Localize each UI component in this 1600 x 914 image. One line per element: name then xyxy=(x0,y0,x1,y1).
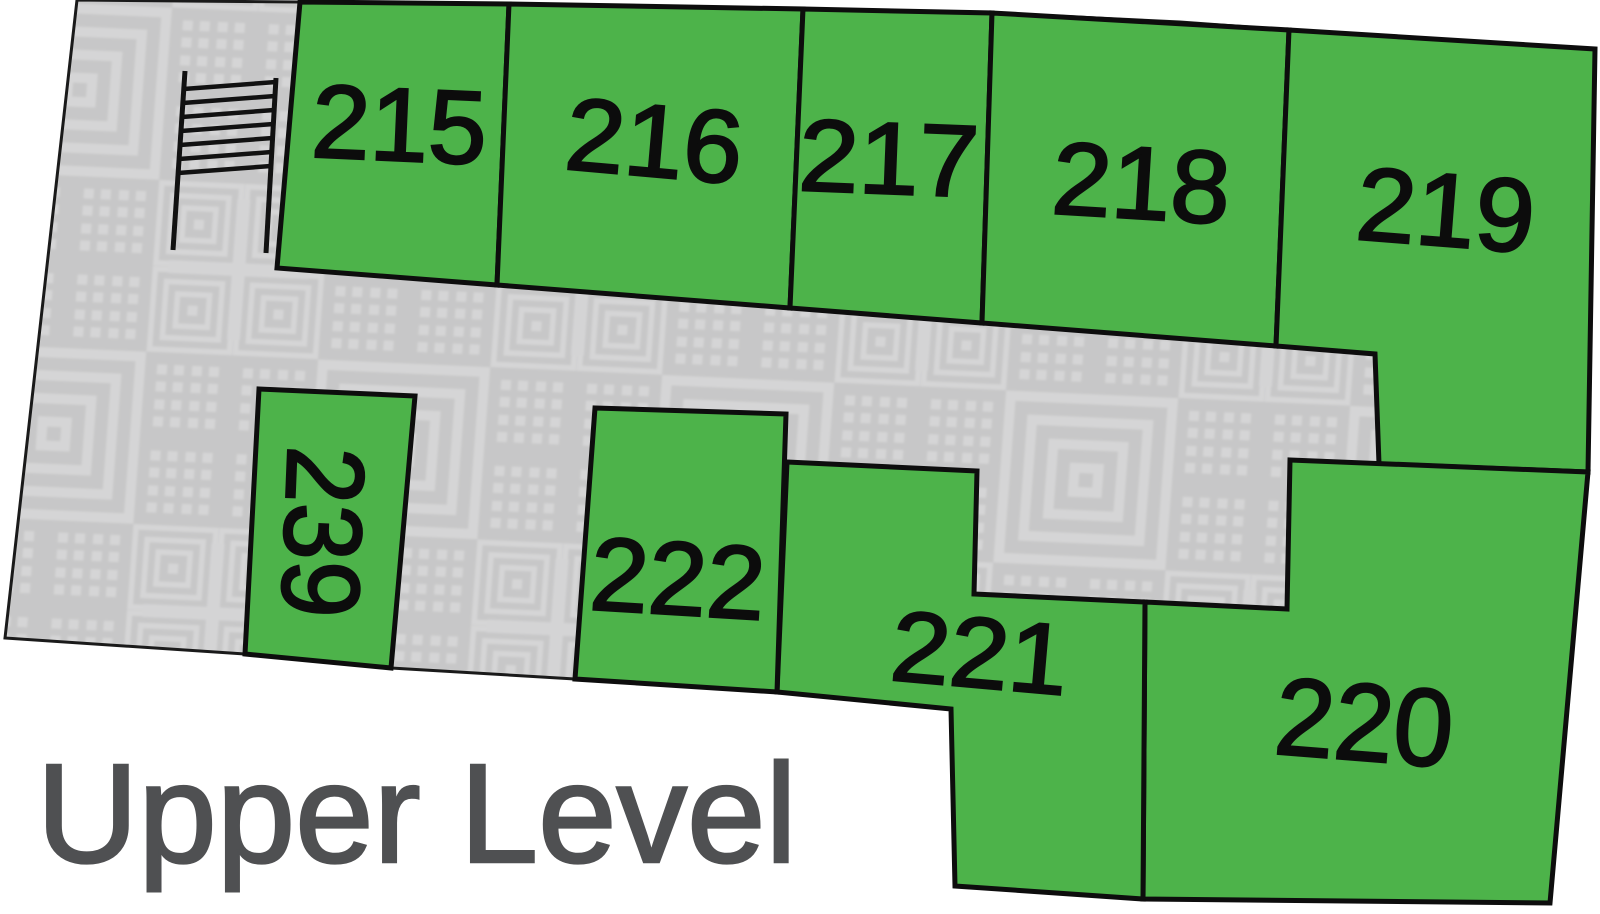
svg-text:219: 219 xyxy=(1352,146,1539,276)
svg-text:Upper Level: Upper Level xyxy=(37,734,797,892)
svg-text:215: 215 xyxy=(309,64,489,188)
svg-text:220: 220 xyxy=(1271,655,1458,792)
svg-text:222: 222 xyxy=(587,516,769,642)
svg-text:218: 218 xyxy=(1049,120,1234,246)
svg-text:216: 216 xyxy=(561,76,747,206)
svg-text:217: 217 xyxy=(797,98,981,219)
svg-text:221: 221 xyxy=(887,590,1073,717)
svg-text:239: 239 xyxy=(258,444,388,620)
